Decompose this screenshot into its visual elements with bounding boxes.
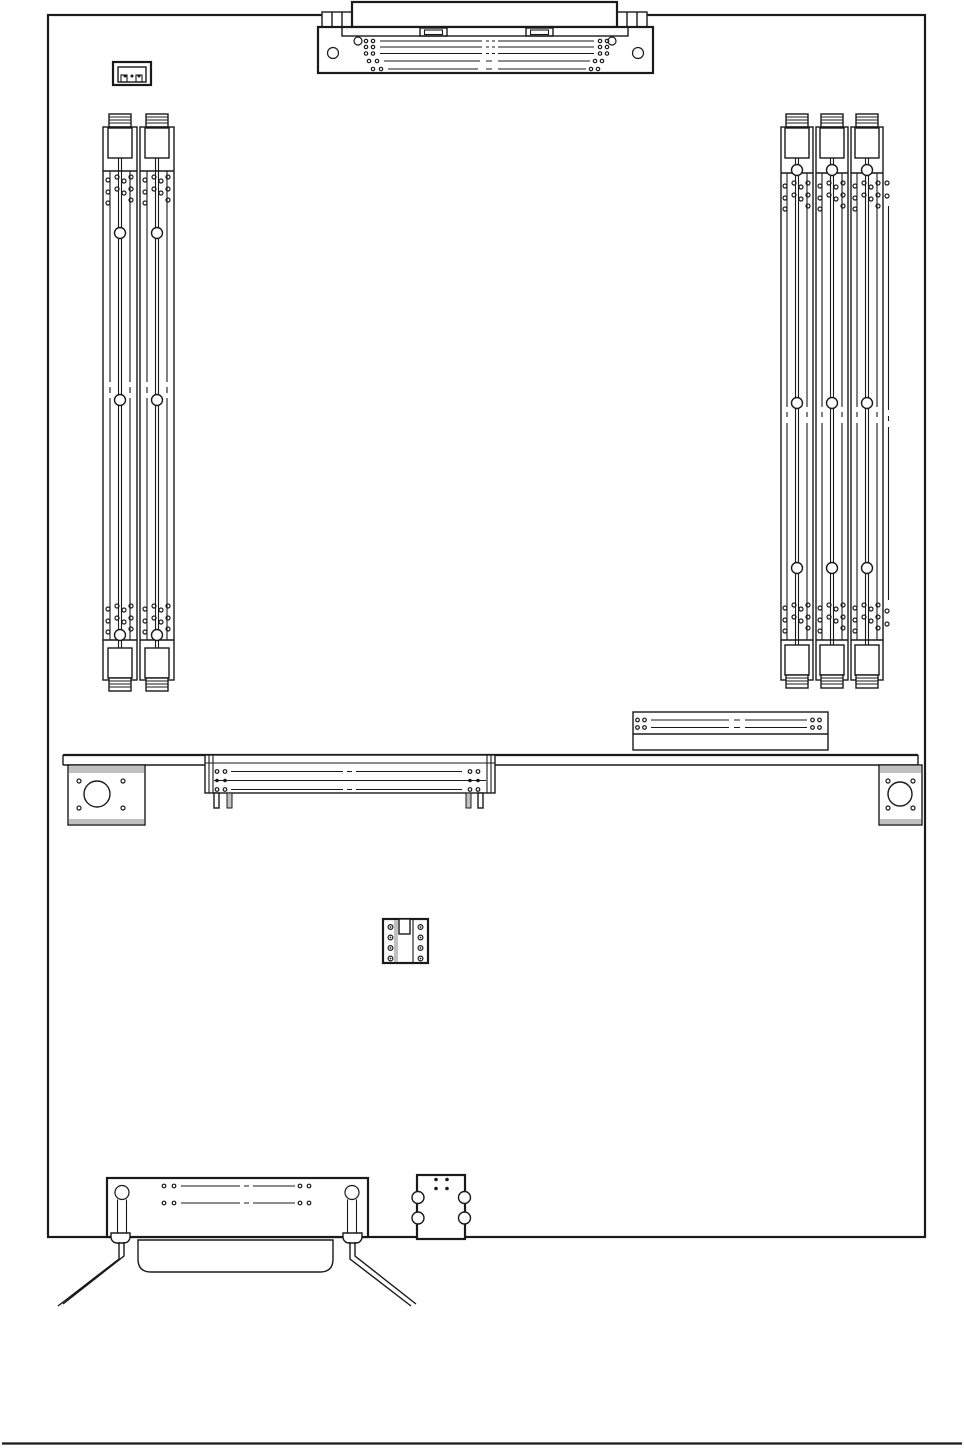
support-leg-left [58,1242,124,1306]
d-shell [138,1240,333,1272]
riser-connector [205,755,495,808]
external-connector [58,1178,416,1306]
memory-slot [781,114,813,688]
bracket-right [879,765,922,825]
support-leg-right [350,1242,416,1306]
leg-foot [343,1233,362,1243]
module-hole [459,1212,471,1224]
three-pin-header [113,62,151,85]
connector-body [107,1178,368,1237]
right-edge-trace [885,181,889,626]
memory-slot [103,114,137,691]
memory-slot [816,114,848,688]
mid-board-connector [633,712,828,750]
module-hole [412,1212,424,1224]
riser-connector-legs [214,793,483,808]
top-edge-connector [318,2,653,73]
socket-notch [399,919,410,934]
board-outline [48,15,925,1237]
bracket-hole [84,781,110,807]
memory-slot [140,114,174,691]
memory-bank-right [781,114,883,688]
memory-bank-left [103,114,174,691]
module-hole [412,1192,424,1204]
bracket-hole [888,782,912,806]
module-hole [459,1192,471,1204]
connector-shroud [352,2,617,27]
connector-body [318,27,653,73]
bracket-left [68,765,145,825]
memory-slot [851,114,883,688]
dip-socket [383,919,428,963]
page [0,0,964,1452]
small-module [412,1175,471,1239]
motherboard-diagram [0,0,964,1452]
leg-foot [111,1233,130,1243]
